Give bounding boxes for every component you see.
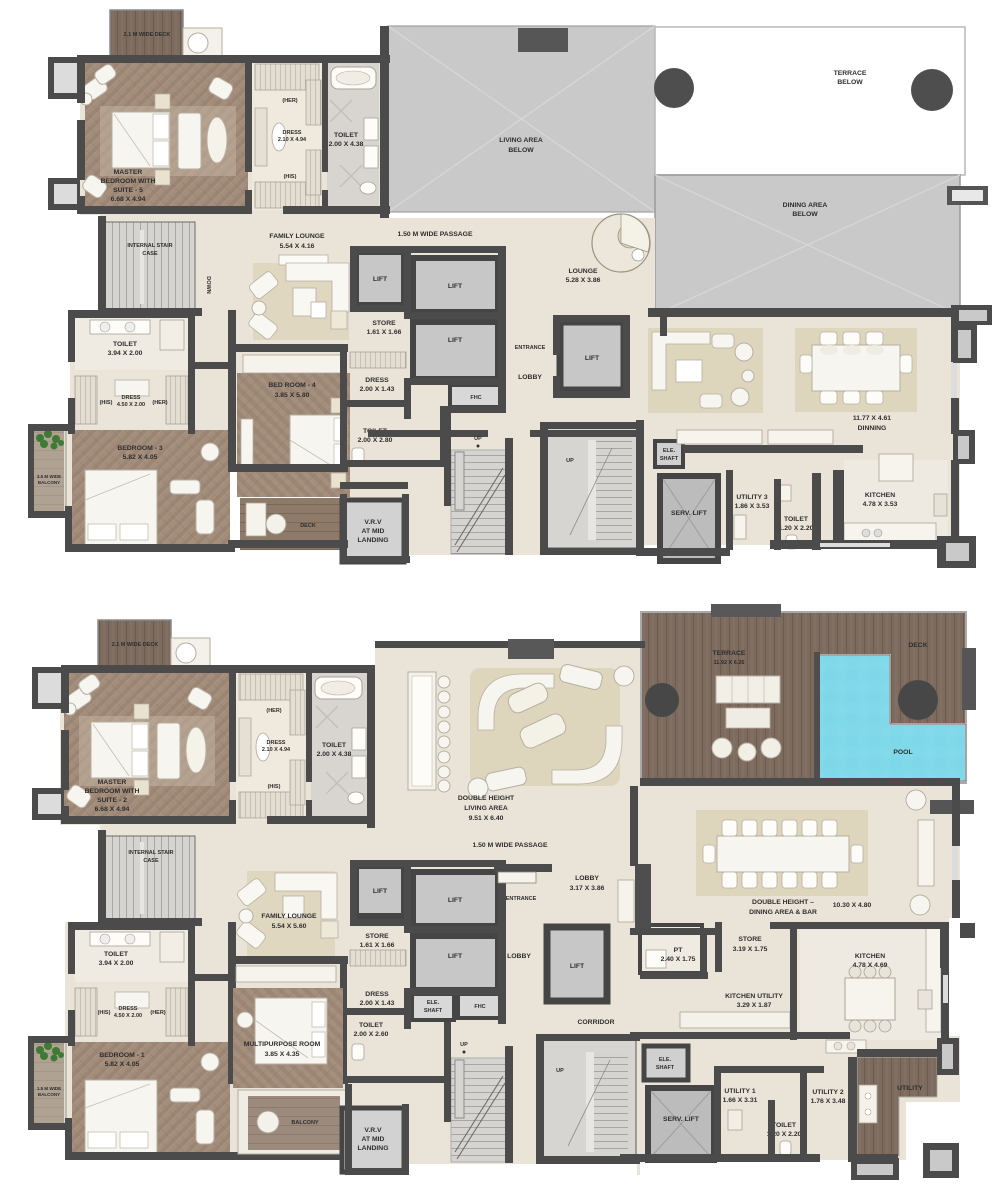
svg-text:BEDROOM WITH: BEDROOM WITH <box>85 788 140 795</box>
svg-text:2.1 M WIDE DECK: 2.1 M WIDE DECK <box>124 32 171 38</box>
svg-text:DECK: DECK <box>908 642 927 649</box>
svg-text:TOILET: TOILET <box>359 1022 384 1029</box>
svg-text:DINNING: DINNING <box>858 425 887 432</box>
svg-text:KITCHEN: KITCHEN <box>865 492 895 499</box>
svg-text:UTILITY 2: UTILITY 2 <box>812 1089 843 1096</box>
svg-text:TOILET: TOILET <box>772 1122 797 1129</box>
svg-text:CASE: CASE <box>142 251 158 257</box>
svg-text:MULTIPURPOSE ROOM: MULTIPURPOSE ROOM <box>244 1041 321 1048</box>
svg-text:DOUBLE HEIGHT –: DOUBLE HEIGHT – <box>752 899 814 906</box>
svg-text:BALCONY: BALCONY <box>291 1120 319 1126</box>
svg-text:3.94 X 2.00: 3.94 X 2.00 <box>99 960 134 967</box>
svg-text:(HIS): (HIS) <box>284 174 297 180</box>
svg-text:BELOW: BELOW <box>792 211 818 218</box>
svg-text:LOBBY: LOBBY <box>518 374 542 381</box>
svg-text:4.78 X 3.53: 4.78 X 3.53 <box>863 501 898 508</box>
svg-text:ELE.: ELE. <box>663 448 676 454</box>
svg-text:5.82 X 4.05: 5.82 X 4.05 <box>105 1061 140 1068</box>
svg-text:FHC: FHC <box>474 1004 485 1010</box>
svg-text:BEDROOM - 1: BEDROOM - 1 <box>99 1052 145 1059</box>
svg-text:LANDING: LANDING <box>358 537 389 544</box>
svg-text:ENTRANCE: ENTRANCE <box>515 345 546 351</box>
svg-text:2.00 X 4.38: 2.00 X 4.38 <box>317 751 352 758</box>
svg-text:LIVING AREA: LIVING AREA <box>464 805 508 812</box>
svg-text:3.17 X 3.86: 3.17 X 3.86 <box>570 885 605 892</box>
svg-text:BELOW: BELOW <box>837 79 863 86</box>
svg-text:(HER): (HER) <box>152 400 167 406</box>
svg-text:(HIS): (HIS) <box>100 400 113 406</box>
svg-text:INTERNAL STAIR: INTERNAL STAIR <box>127 243 172 249</box>
svg-text:3.29 X 1.87: 3.29 X 1.87 <box>737 1002 772 1009</box>
svg-text:ELE.: ELE. <box>427 1000 440 1006</box>
svg-text:SERV. LIFT: SERV. LIFT <box>663 1116 700 1123</box>
svg-text:LIVING AREA: LIVING AREA <box>499 137 543 144</box>
svg-text:AT MID: AT MID <box>362 528 385 535</box>
svg-text:2.10 X 4.94: 2.10 X 4.94 <box>278 137 307 143</box>
svg-text:4.50 X 2.00: 4.50 X 2.00 <box>114 1013 142 1019</box>
svg-text:UP: UP <box>556 1068 564 1074</box>
svg-text:LIFT: LIFT <box>570 963 585 970</box>
svg-text:FAMILY LOUNGE: FAMILY LOUNGE <box>269 233 325 240</box>
svg-text:LOBBY: LOBBY <box>507 953 531 960</box>
svg-text:(HER): (HER) <box>266 708 281 714</box>
svg-text:UP: UP <box>566 458 574 464</box>
svg-text:CASE: CASE <box>143 858 159 864</box>
svg-text:V.R.V: V.R.V <box>364 519 382 526</box>
svg-text:11.77 X 4.61: 11.77 X 4.61 <box>853 415 891 422</box>
svg-text:4.50 X 2.00: 4.50 X 2.00 <box>117 402 145 408</box>
svg-text:UTILITY: UTILITY <box>897 1085 923 1092</box>
svg-text:4.78 X 4.69: 4.78 X 4.69 <box>853 962 888 969</box>
svg-text:UTILITY 1: UTILITY 1 <box>724 1088 755 1095</box>
svg-text:LIFT: LIFT <box>448 953 463 960</box>
svg-text:DRESS: DRESS <box>267 740 286 746</box>
svg-text:6.68 X 4.94: 6.68 X 4.94 <box>111 196 146 203</box>
svg-text:V.R.V: V.R.V <box>364 1127 382 1134</box>
svg-text:(HER): (HER) <box>282 98 297 104</box>
svg-text:9.51 X 6.40: 9.51 X 6.40 <box>469 815 504 822</box>
svg-text:DRESS: DRESS <box>365 377 389 384</box>
svg-text:PT: PT <box>674 947 684 954</box>
svg-text:DRESS: DRESS <box>283 130 302 136</box>
svg-text:2.10 X 4.94: 2.10 X 4.94 <box>262 747 291 753</box>
svg-text:DOWN: DOWN <box>205 276 211 293</box>
svg-text:CORRIDOR: CORRIDOR <box>577 1019 614 1026</box>
svg-text:5.82 X 4.05: 5.82 X 4.05 <box>123 454 158 461</box>
svg-text:DOUBLE HEIGHT: DOUBLE HEIGHT <box>458 795 515 802</box>
svg-text:TOILET: TOILET <box>322 742 347 749</box>
svg-text:DRESS: DRESS <box>119 1006 138 1012</box>
svg-text:TOILET: TOILET <box>784 516 809 523</box>
svg-text:6.68 X 4.94: 6.68 X 4.94 <box>95 806 130 813</box>
svg-text:1.50 M WIDE PASSAGE: 1.50 M WIDE PASSAGE <box>472 842 548 849</box>
svg-text:2.00 X 4.38: 2.00 X 4.38 <box>329 141 364 148</box>
svg-text:DRESS: DRESS <box>365 991 389 998</box>
svg-text:10.30 X 4.80: 10.30 X 4.80 <box>833 902 872 909</box>
svg-text:3.85 X 4.35: 3.85 X 4.35 <box>265 1051 300 1058</box>
svg-text:TERRACE: TERRACE <box>834 70 867 77</box>
svg-text:(HIS): (HIS) <box>98 1010 111 1016</box>
svg-text:5.54 X 4.16: 5.54 X 4.16 <box>280 243 315 250</box>
svg-text:LOBBY: LOBBY <box>575 875 599 882</box>
svg-text:MASTER: MASTER <box>114 169 143 176</box>
svg-text:SUITE - 2: SUITE - 2 <box>97 797 127 804</box>
svg-text:1.5 M WIDE: 1.5 M WIDE <box>37 1086 61 1091</box>
svg-text:BEDROOM WITH: BEDROOM WITH <box>101 178 156 185</box>
svg-text:UP: UP <box>474 436 482 442</box>
svg-text:LIFT: LIFT <box>585 355 600 362</box>
svg-text:1.76 X 3.48: 1.76 X 3.48 <box>811 1098 846 1105</box>
svg-text:TOILET: TOILET <box>334 132 359 139</box>
svg-text:2.00 X 2.60: 2.00 X 2.60 <box>354 1031 389 1038</box>
svg-text:BELOW: BELOW <box>508 147 534 154</box>
svg-text:SHAFT: SHAFT <box>656 1065 675 1071</box>
svg-text:DECK: DECK <box>300 523 316 529</box>
svg-text:STORE: STORE <box>365 933 389 940</box>
svg-text:1.20 X 2.20: 1.20 X 2.20 <box>779 525 814 532</box>
svg-text:LIFT: LIFT <box>448 283 463 290</box>
svg-text:POOL: POOL <box>893 749 912 756</box>
svg-text:STORE: STORE <box>372 320 396 327</box>
svg-text:SERV. LIFT: SERV. LIFT <box>671 510 708 517</box>
svg-text:TOILET: TOILET <box>104 951 129 958</box>
svg-text:INTERNAL STAIR: INTERNAL STAIR <box>128 850 173 856</box>
svg-text:(HIS): (HIS) <box>268 784 281 790</box>
svg-text:DRESS: DRESS <box>122 395 141 401</box>
svg-text:1.61 X 1.66: 1.61 X 1.66 <box>367 329 402 336</box>
svg-text:BALCONY: BALCONY <box>38 1092 60 1097</box>
svg-text:5.28 X 3.86: 5.28 X 3.86 <box>566 277 601 284</box>
svg-text:3.19 X 1.75: 3.19 X 1.75 <box>733 946 768 953</box>
svg-text:1.61 X 1.66: 1.61 X 1.66 <box>360 942 395 949</box>
svg-text:DINING AREA: DINING AREA <box>783 202 828 209</box>
svg-text:1.86 X 3.53: 1.86 X 3.53 <box>735 503 770 510</box>
svg-text:SHAFT: SHAFT <box>424 1008 443 1014</box>
svg-text:LANDING: LANDING <box>358 1145 389 1152</box>
svg-text:LIFT: LIFT <box>373 276 388 283</box>
svg-text:2.00 X 1.43: 2.00 X 1.43 <box>360 386 395 393</box>
svg-text:UP: UP <box>460 1042 468 1048</box>
svg-text:1.66 X 3.31: 1.66 X 3.31 <box>723 1097 758 1104</box>
svg-text:LOUNGE: LOUNGE <box>568 268 598 275</box>
svg-text:SHAFT: SHAFT <box>660 456 679 462</box>
svg-text:STORE: STORE <box>738 936 762 943</box>
svg-text:BEDROOM - 3: BEDROOM - 3 <box>117 445 163 452</box>
svg-text:LIFT: LIFT <box>448 897 463 904</box>
svg-text:5.54 X 5.60: 5.54 X 5.60 <box>272 923 307 930</box>
svg-text:SUITE - 5: SUITE - 5 <box>113 187 143 194</box>
svg-text:11.92 X 6.26: 11.92 X 6.26 <box>714 660 745 666</box>
svg-text:3.5 M WIDE: 3.5 M WIDE <box>37 474 61 479</box>
svg-text:TOILET: TOILET <box>113 341 138 348</box>
svg-text:DINING AREA & BAR: DINING AREA & BAR <box>749 909 817 916</box>
svg-text:KITCHEN: KITCHEN <box>855 953 885 960</box>
svg-text:1.50 M WIDE PASSAGE: 1.50 M WIDE PASSAGE <box>397 231 473 238</box>
svg-text:BALCONY: BALCONY <box>38 480 60 485</box>
svg-text:LIFT: LIFT <box>448 337 463 344</box>
svg-text:2.40 X 1.75: 2.40 X 1.75 <box>661 956 696 963</box>
svg-text:AT MID: AT MID <box>362 1136 385 1143</box>
svg-text:KITCHEN UTILITY: KITCHEN UTILITY <box>725 993 783 1000</box>
svg-text:BED ROOM - 4: BED ROOM - 4 <box>268 382 315 389</box>
svg-text:LIFT: LIFT <box>373 888 388 895</box>
svg-text:MASTER: MASTER <box>98 779 127 786</box>
svg-text:2.1 M WIDE DECK: 2.1 M WIDE DECK <box>112 642 159 648</box>
svg-text:2.00 X 1.43: 2.00 X 1.43 <box>360 1000 395 1007</box>
svg-text:FHC: FHC <box>470 395 481 401</box>
svg-text:TERRACE: TERRACE <box>713 650 746 657</box>
svg-text:(HER): (HER) <box>150 1010 165 1016</box>
svg-text:UTILITY 3: UTILITY 3 <box>736 494 767 501</box>
svg-text:ELE.: ELE. <box>659 1057 672 1063</box>
svg-text:ENTRANCE: ENTRANCE <box>506 896 537 902</box>
svg-text:3.85 X 5.80: 3.85 X 5.80 <box>275 392 310 399</box>
svg-text:FAMILY LOUNGE: FAMILY LOUNGE <box>261 913 317 920</box>
svg-text:2.00 X 2.80: 2.00 X 2.80 <box>358 437 393 444</box>
svg-text:3.94 X 2.00: 3.94 X 2.00 <box>108 350 143 357</box>
